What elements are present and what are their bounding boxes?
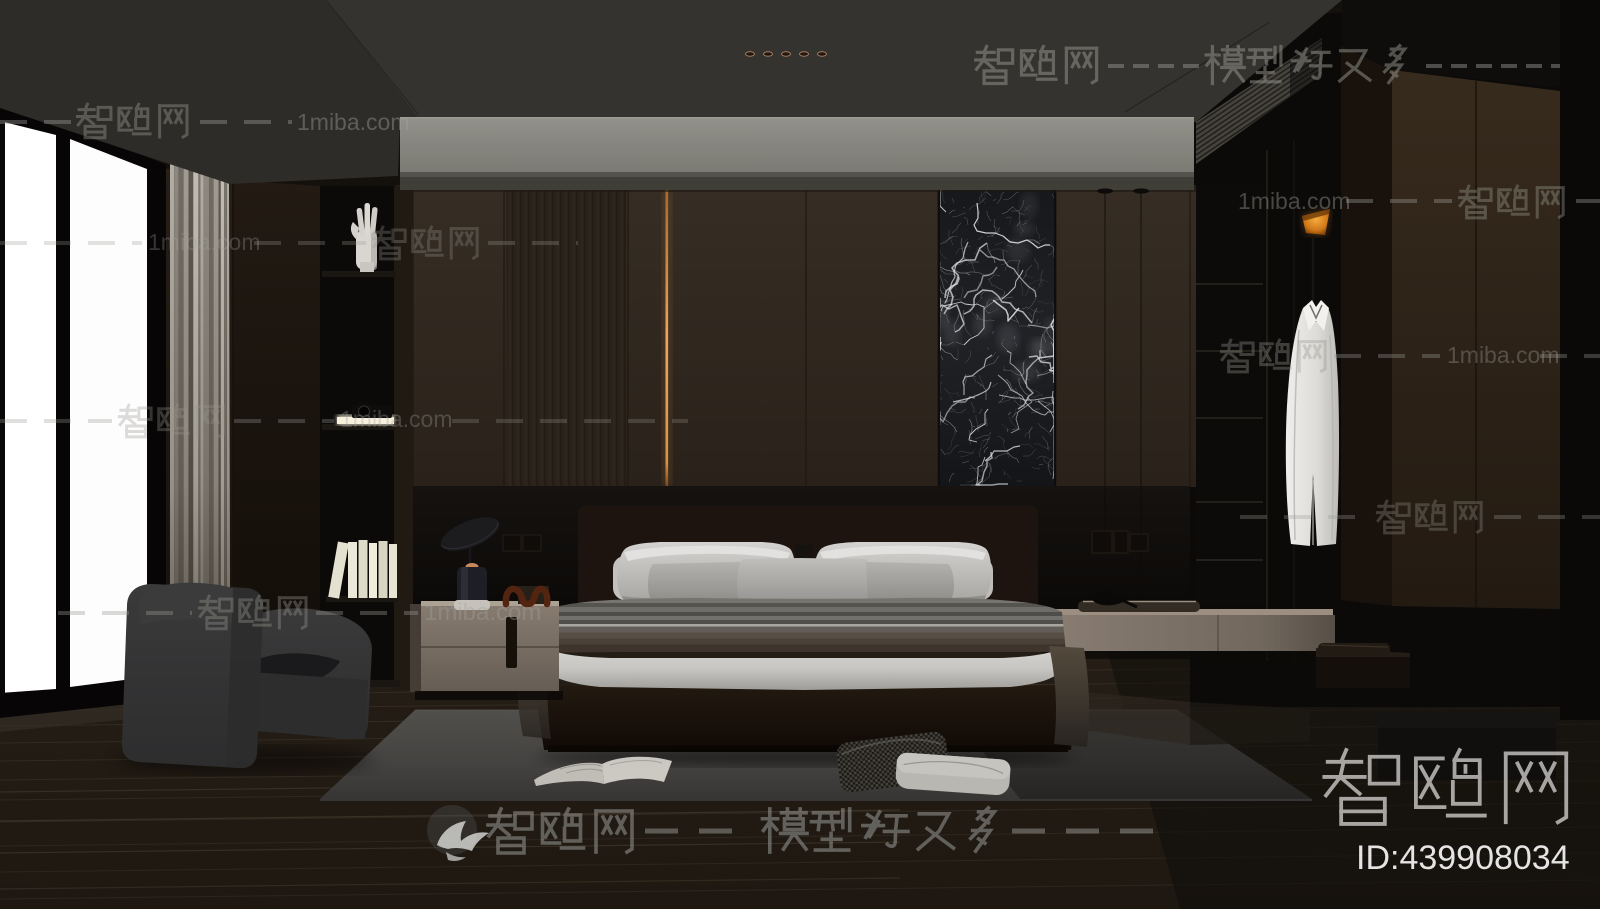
svg-text:1miba.com: 1miba.com — [148, 229, 260, 255]
svg-text:1miba.com: 1miba.com — [340, 406, 452, 432]
svg-text:1miba.com: 1miba.com — [1238, 188, 1350, 214]
svg-text:ID:439908034: ID:439908034 — [1356, 839, 1570, 877]
svg-text:1miba.com: 1miba.com — [297, 109, 409, 135]
svg-text:1miba.com: 1miba.com — [424, 599, 541, 626]
